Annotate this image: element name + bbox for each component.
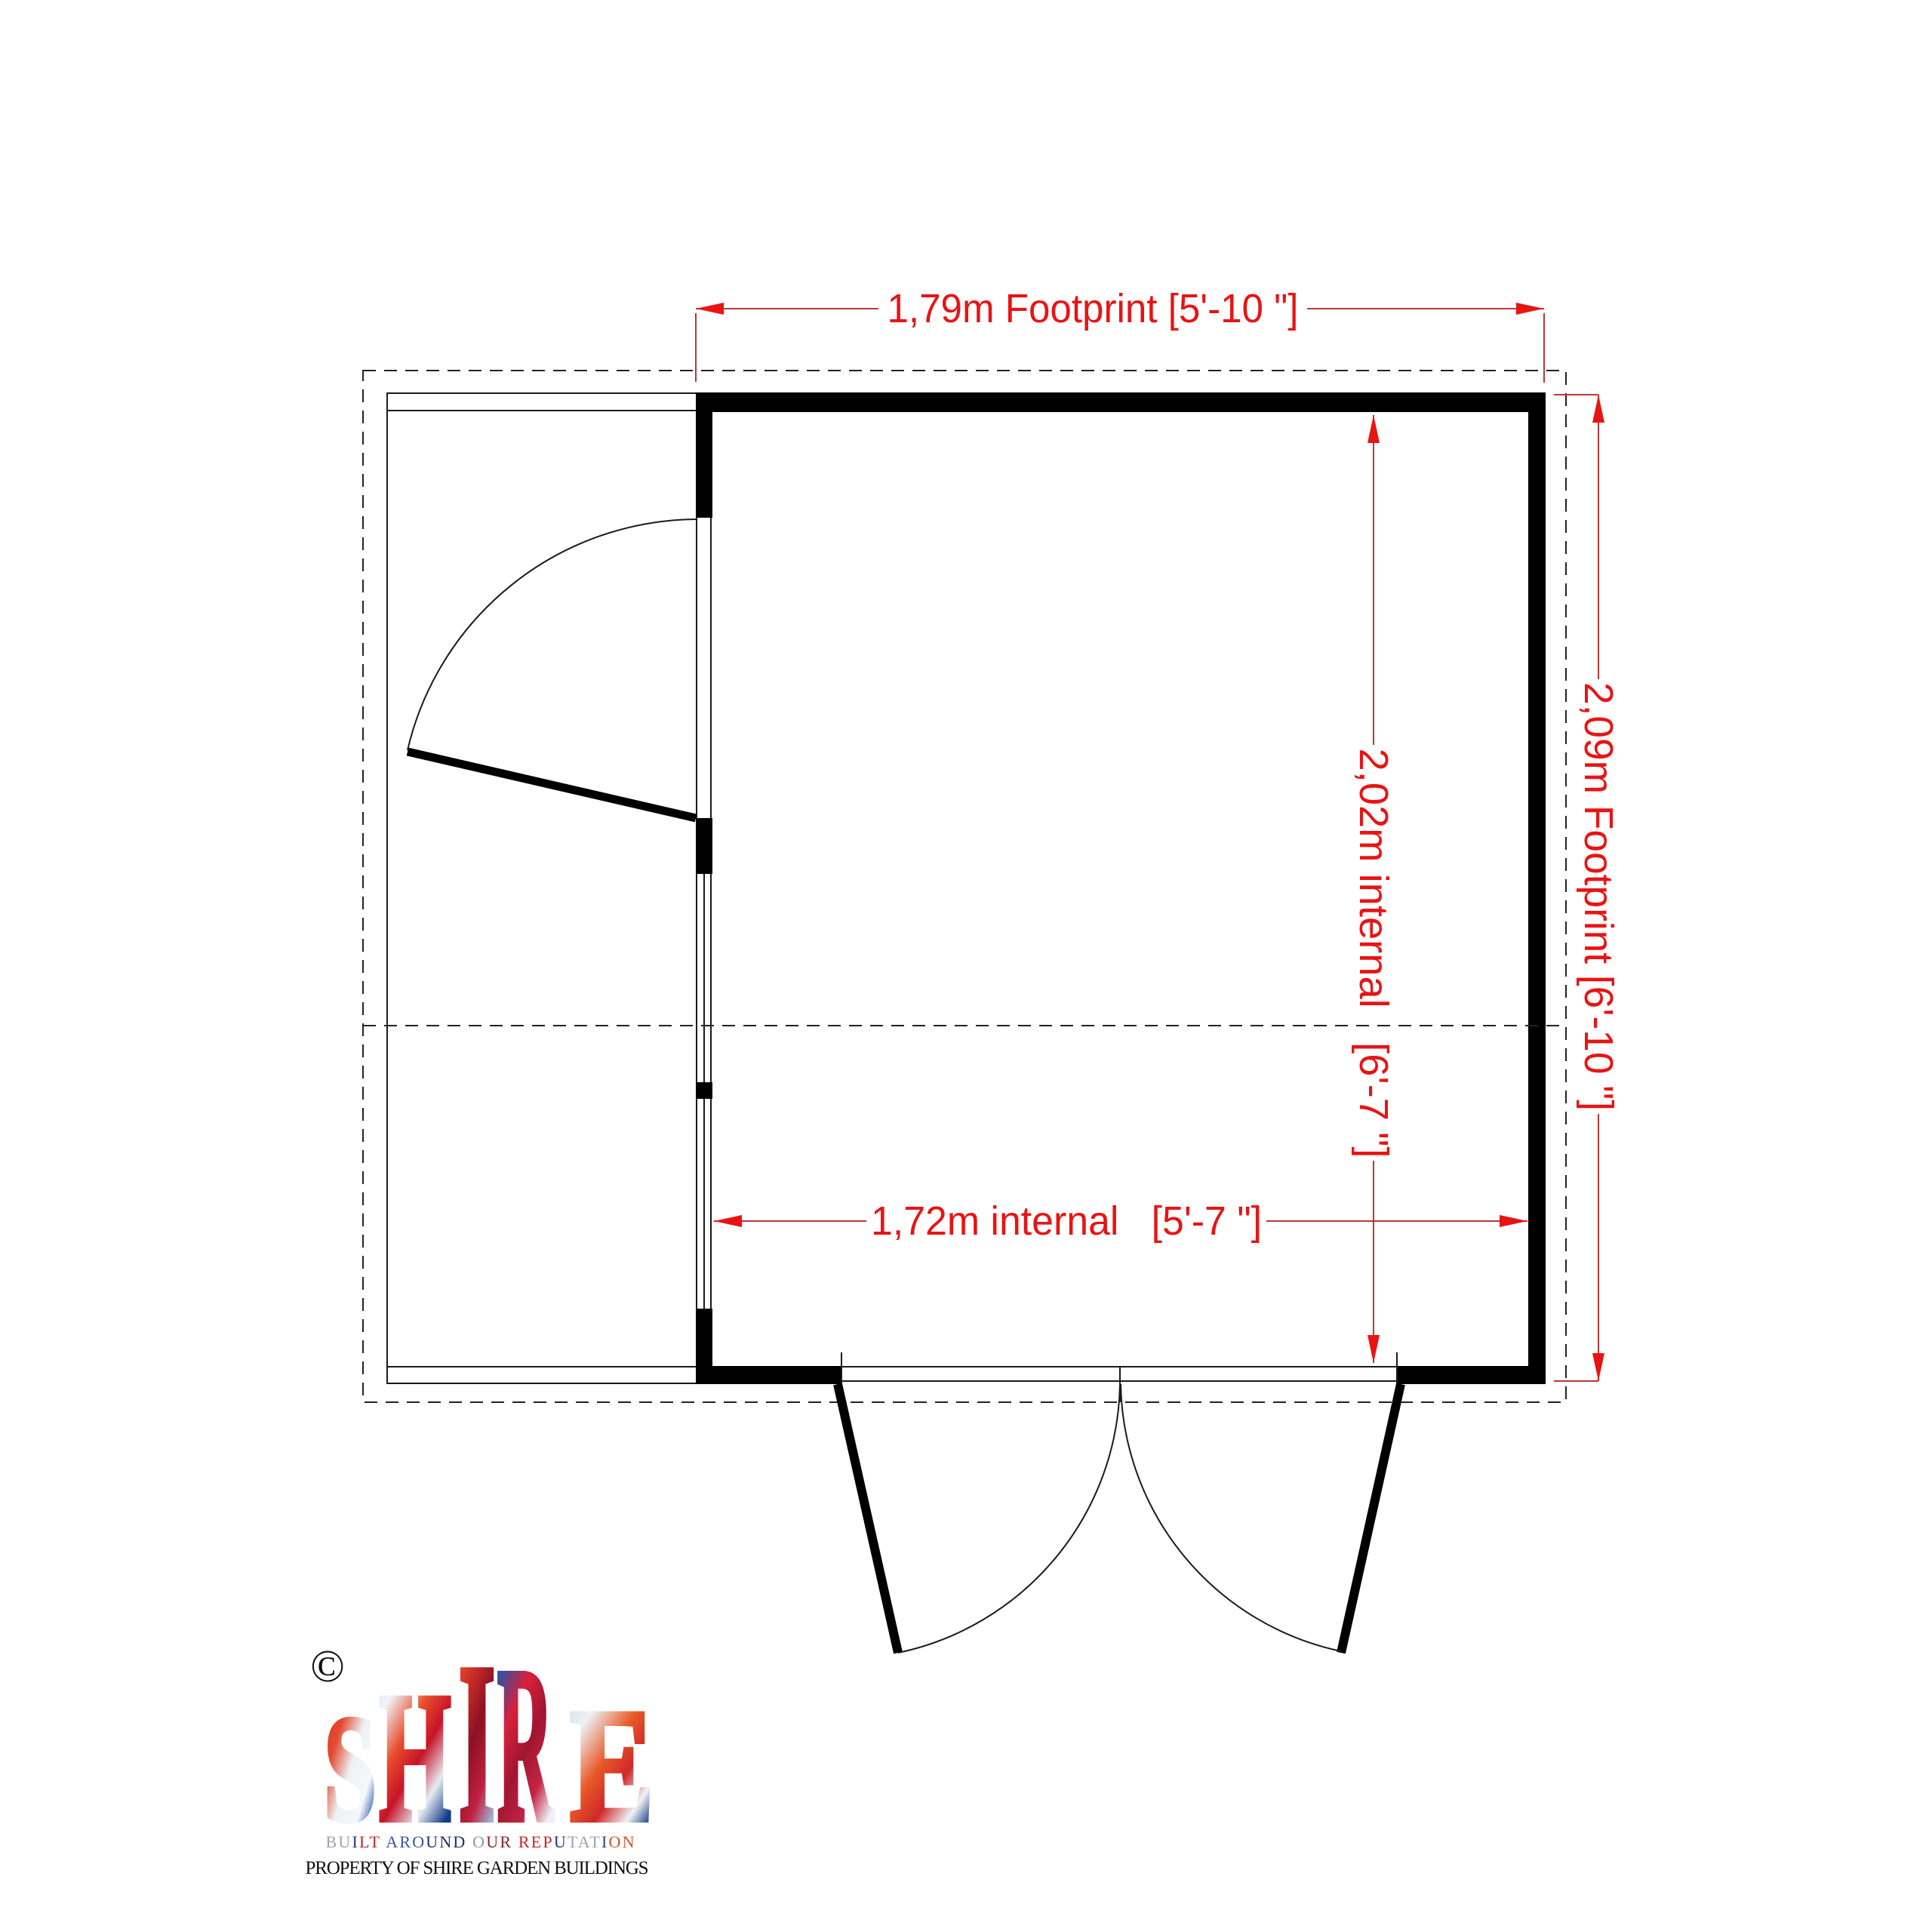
svg-text:PROPERTY OF SHIRE GARDEN BUILD: PROPERTY OF SHIRE GARDEN BUILDINGS [306,1858,649,1878]
svg-text:E: E [571,1678,654,1855]
svg-text:1,72m internal [5'-7 "]: 1,72m internal [5'-7 "] [871,1198,1262,1244]
svg-text:S: S [325,1685,377,1852]
svg-text:©: © [310,1641,345,1691]
svg-text:2,09m Footprint [6'-10 "]: 2,09m Footprint [6'-10 "] [1576,682,1621,1111]
svg-text:R: R [497,1621,555,1868]
svg-text:2,02m internal [6'-7 "]: 2,02m internal [6'-7 "] [1351,749,1396,1158]
svg-text:H: H [379,1654,451,1860]
svg-text:1,79m Footprint [5'-10 "]: 1,79m Footprint [5'-10 "] [888,286,1299,331]
